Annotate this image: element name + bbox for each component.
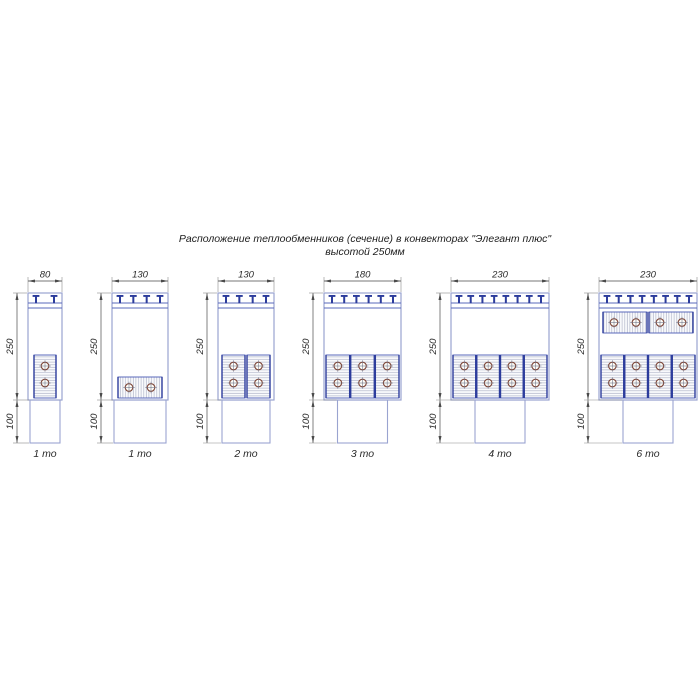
grille-bracket-icon: [481, 297, 483, 304]
dimension-arrow-icon: [394, 280, 401, 283]
drawing-title-line1: Расположение теплообменников (сечение) в…: [30, 233, 700, 246]
grille-bracket-icon: [380, 297, 382, 304]
drawing-title-line2: высотой 250мм: [30, 246, 700, 259]
base-dimension-label: 100: [428, 413, 439, 430]
duct: [623, 400, 673, 443]
convector-diagram-4: 1802501003 то: [301, 270, 401, 461]
diagram-label: 6 то: [636, 448, 659, 460]
dimension-arrow-icon: [587, 400, 590, 407]
grille-bracket-icon: [159, 297, 161, 304]
grille-bracket-icon: [540, 297, 542, 304]
dimension-arrow-icon: [112, 280, 119, 283]
height-dimension-label: 250: [428, 338, 439, 356]
base-dimension-label: 100: [576, 413, 587, 430]
grille-bracket-icon: [252, 297, 254, 304]
dimension-arrow-icon: [599, 280, 606, 283]
grille-bracket-icon: [368, 297, 370, 304]
dimension-arrow-icon: [100, 393, 103, 400]
convector-diagram-2: 1302501001 то: [89, 270, 168, 461]
height-dimension-label: 250: [576, 338, 587, 356]
diagram-label: 1 то: [33, 448, 56, 460]
dimension-arrow-icon: [439, 400, 442, 407]
dimension-arrow-icon: [312, 436, 315, 443]
height-dimension-label: 250: [301, 338, 312, 356]
base-dimension-label: 100: [5, 413, 16, 430]
duct: [30, 400, 60, 443]
convector-diagram-3: 1302501002 то: [195, 270, 274, 461]
dimension-arrow-icon: [206, 393, 209, 400]
diagram-label: 4 то: [488, 448, 511, 460]
technical-drawing-page: Расположение теплообменников (сечение) в…: [0, 0, 700, 700]
dimension-arrow-icon: [439, 293, 442, 300]
grille-bracket-icon: [505, 297, 507, 304]
grille-bracket-icon: [528, 297, 530, 304]
convector-diagram-6: 2302501006 то: [576, 270, 697, 461]
dimension-arrow-icon: [206, 436, 209, 443]
dimension-arrow-icon: [690, 280, 697, 283]
convector-sections-drawing: 802501001 то1302501001 то1302501002 то18…: [0, 0, 700, 700]
width-dimension-label: 230: [491, 270, 509, 281]
duct: [222, 400, 270, 443]
grille-bracket-icon: [35, 297, 37, 304]
width-dimension-label: 230: [639, 270, 657, 281]
dimension-arrow-icon: [16, 293, 19, 300]
height-dimension-label: 250: [5, 338, 16, 356]
height-dimension-label: 250: [195, 338, 206, 356]
grille-bracket-icon: [629, 297, 631, 304]
dimension-arrow-icon: [55, 280, 62, 283]
dimension-arrow-icon: [312, 393, 315, 400]
duct: [475, 400, 525, 443]
grille-bracket-icon: [606, 297, 608, 304]
grille-bracket-icon: [392, 297, 394, 304]
dimension-arrow-icon: [587, 436, 590, 443]
width-dimension-label: 130: [132, 270, 149, 281]
diagram-label: 3 то: [351, 448, 374, 460]
dimension-arrow-icon: [218, 280, 225, 283]
grille-bracket-icon: [238, 297, 240, 304]
dimension-arrow-icon: [312, 293, 315, 300]
grille-bracket-icon: [265, 297, 267, 304]
duct: [114, 400, 166, 443]
dimension-arrow-icon: [439, 436, 442, 443]
dimension-arrow-icon: [100, 436, 103, 443]
convector-diagram-1: 802501001 то: [5, 270, 62, 461]
base-dimension-label: 100: [89, 413, 100, 430]
diagram-label: 1 то: [128, 448, 151, 460]
grille-bracket-icon: [688, 297, 690, 304]
dimension-arrow-icon: [324, 280, 331, 283]
dimension-arrow-icon: [100, 293, 103, 300]
grille-bracket-icon: [493, 297, 495, 304]
drawing-title: Расположение теплообменников (сечение) в…: [30, 233, 700, 259]
dimension-arrow-icon: [206, 293, 209, 300]
dimension-arrow-icon: [100, 400, 103, 407]
dimension-arrow-icon: [542, 280, 549, 283]
dimension-arrow-icon: [312, 400, 315, 407]
width-dimension-label: 180: [355, 270, 372, 281]
convector-diagram-5: 2302501004 то: [428, 270, 549, 461]
grille-bracket-icon: [53, 297, 55, 304]
base-dimension-label: 100: [301, 413, 312, 430]
grille-bracket-icon: [458, 297, 460, 304]
height-dimension-label: 250: [89, 338, 100, 356]
width-dimension-label: 80: [40, 270, 51, 281]
dimension-arrow-icon: [587, 293, 590, 300]
grille-bracket-icon: [665, 297, 667, 304]
grille-bracket-icon: [225, 297, 227, 304]
grille-bracket-icon: [343, 297, 345, 304]
dimension-arrow-icon: [16, 436, 19, 443]
grille-bracket-icon: [146, 297, 148, 304]
dimension-arrow-icon: [206, 400, 209, 407]
diagram-label: 2 то: [233, 448, 257, 460]
dimension-arrow-icon: [451, 280, 458, 283]
duct: [338, 400, 388, 443]
dimension-arrow-icon: [439, 393, 442, 400]
grille-bracket-icon: [653, 297, 655, 304]
grille-bracket-icon: [355, 297, 357, 304]
grille-bracket-icon: [676, 297, 678, 304]
dimension-arrow-icon: [587, 393, 590, 400]
grille-bracket-icon: [470, 297, 472, 304]
dimension-arrow-icon: [161, 280, 168, 283]
grille-bracket-icon: [641, 297, 643, 304]
grille-bracket-icon: [132, 297, 134, 304]
dimension-arrow-icon: [16, 400, 19, 407]
grille-bracket-icon: [119, 297, 121, 304]
dimension-arrow-icon: [267, 280, 274, 283]
grille-bracket-icon: [331, 297, 333, 304]
grille-bracket-icon: [618, 297, 620, 304]
width-dimension-label: 130: [238, 270, 255, 281]
grille-bracket-icon: [517, 297, 519, 304]
dimension-arrow-icon: [28, 280, 35, 283]
dimension-arrow-icon: [16, 393, 19, 400]
base-dimension-label: 100: [195, 413, 206, 430]
